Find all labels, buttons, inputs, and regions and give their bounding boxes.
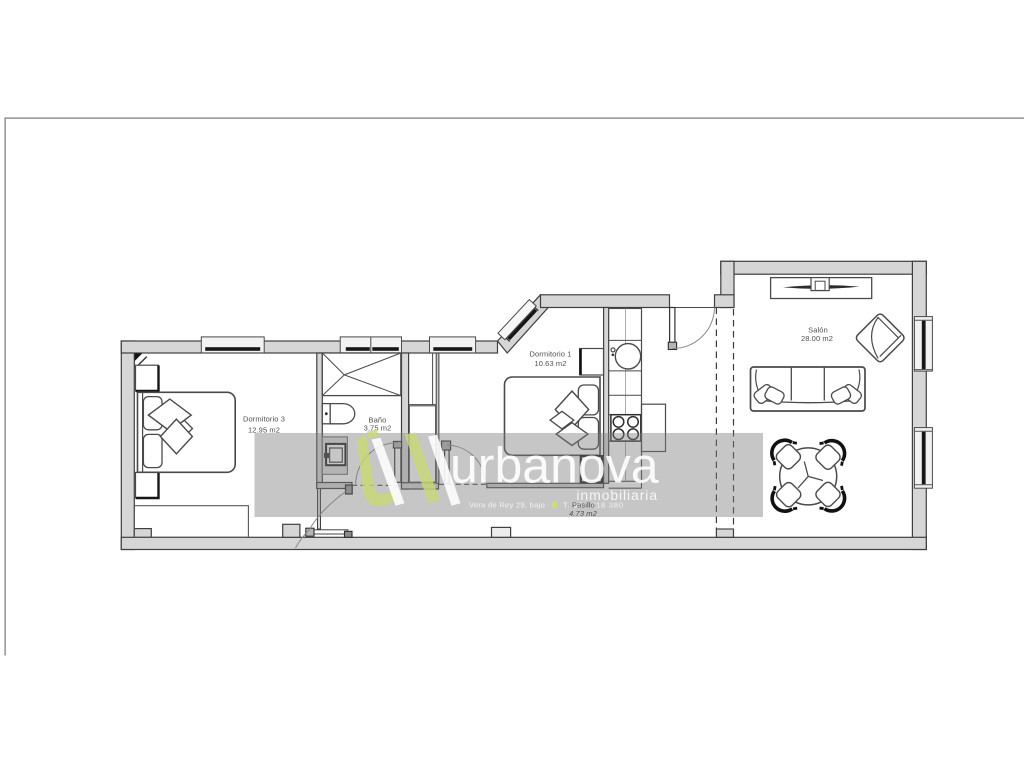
svg-text:urbanova: urbanova (450, 438, 659, 494)
svg-text:Dormitorio 1: Dormitorio 1 (529, 350, 571, 359)
svg-text:Dormitorio 3: Dormitorio 3 (243, 415, 285, 424)
svg-text:10.63 m2: 10.63 m2 (534, 359, 566, 368)
svg-text:4.73 m2: 4.73 m2 (569, 509, 598, 518)
svg-text:3.75 m2: 3.75 m2 (364, 424, 392, 433)
svg-text:Vera de Rey 29, bajo: Vera de Rey 29, bajo (469, 500, 545, 509)
svg-text:28.00 m2: 28.00 m2 (801, 334, 833, 343)
